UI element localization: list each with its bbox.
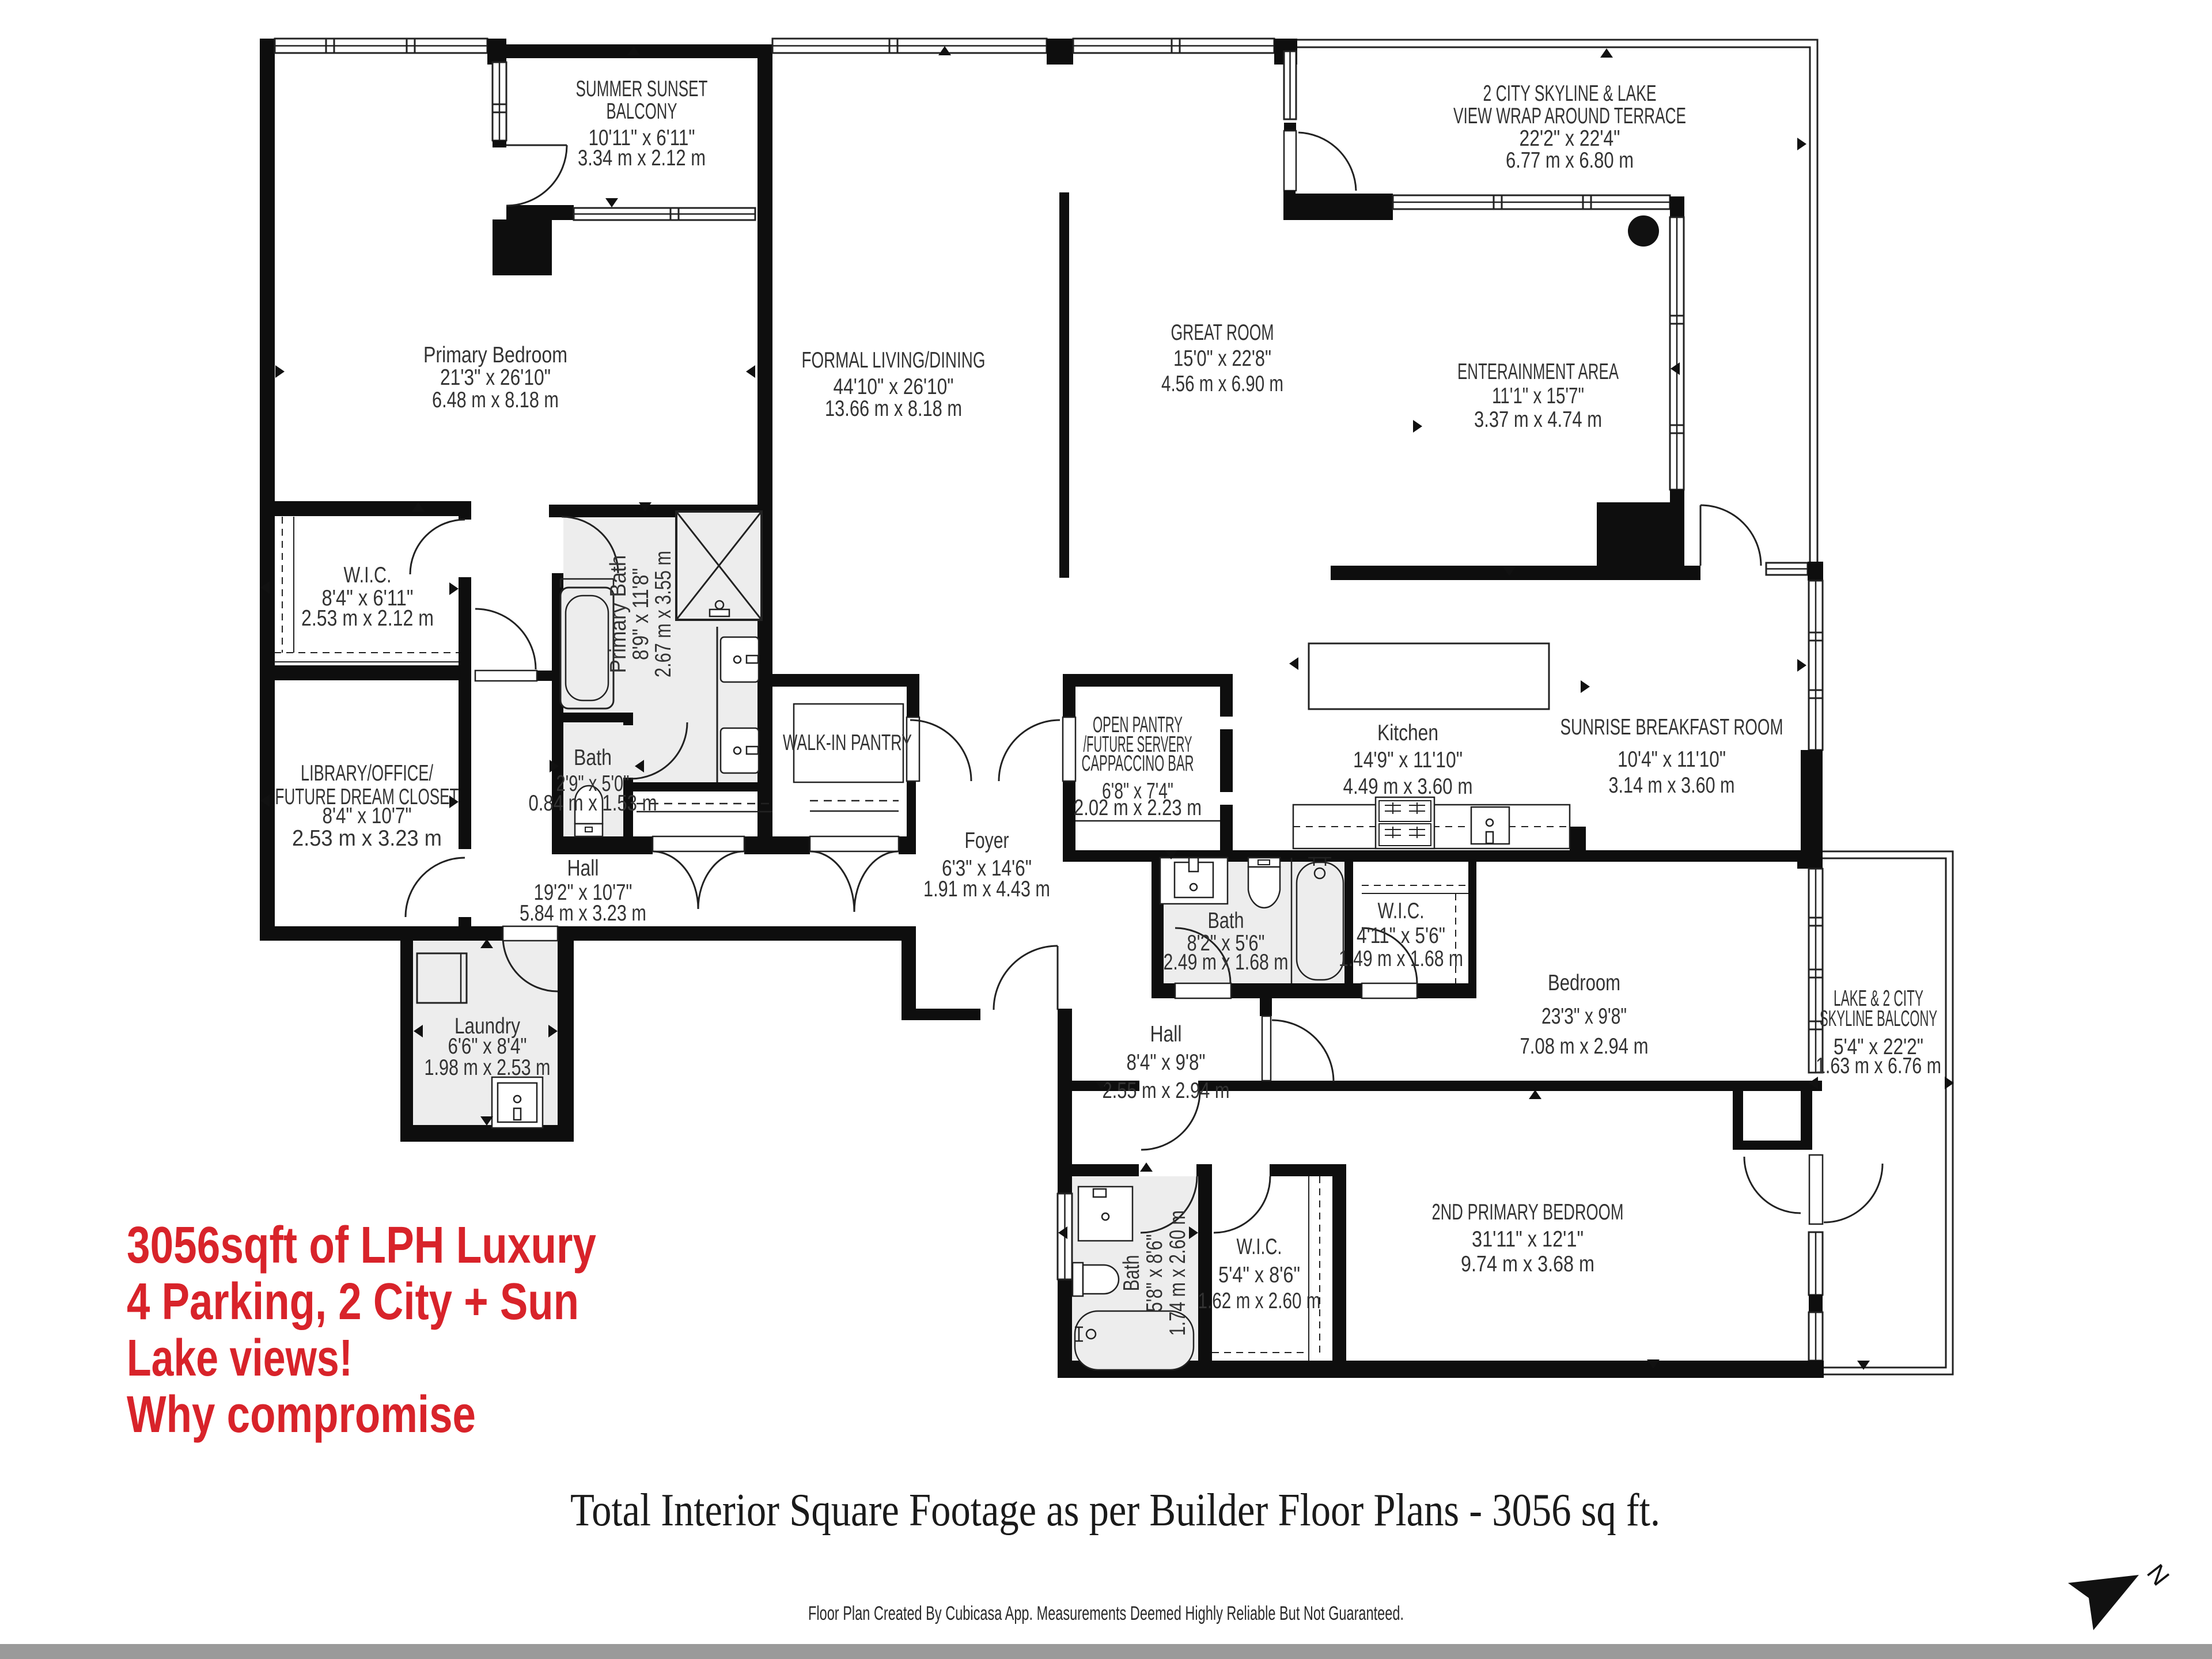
svg-text:Floor Plan Created By Cubicasa: Floor Plan Created By Cubicasa App. Meas…	[808, 1603, 1404, 1624]
svg-text:1.91 m x 4.43 m: 1.91 m x 4.43 m	[923, 877, 1050, 902]
svg-text:22'2" x 22'4": 22'2" x 22'4"	[1520, 126, 1620, 151]
svg-text:5'8" x 8'6": 5'8" x 8'6"	[1142, 1234, 1167, 1312]
svg-text:3056sqft of LPH Luxury: 3056sqft of LPH Luxury	[127, 1217, 596, 1274]
svg-text:3.34 m x 2.12 m: 3.34 m x 2.12 m	[578, 146, 706, 171]
svg-text:3.14 m x 3.60 m: 3.14 m x 3.60 m	[1609, 773, 1735, 798]
svg-text:4.49 m x 3.60 m: 4.49 m x 3.60 m	[1343, 774, 1473, 799]
svg-text:3.37 m x 4.74 m: 3.37 m x 4.74 m	[1474, 407, 1602, 432]
svg-text:1.49 m x 1.68 m: 1.49 m x 1.68 m	[1339, 946, 1463, 971]
svg-text:2.53 m x 3.23 m: 2.53 m x 3.23 m	[292, 826, 442, 851]
svg-text:2ND PRIMARY BEDROOM: 2ND PRIMARY BEDROOM	[1432, 1200, 1624, 1225]
svg-text:2.67 m x 3.55 m: 2.67 m x 3.55 m	[651, 551, 676, 677]
svg-text:W.I.C.: W.I.C.	[344, 563, 392, 588]
svg-text:2.55 m x 2.94 m: 2.55 m x 2.94 m	[1103, 1078, 1230, 1103]
svg-text:Bath: Bath	[1119, 1255, 1144, 1291]
svg-text:6.48 m x 8.18 m: 6.48 m x 8.18 m	[432, 388, 559, 412]
svg-text:1.74 m x 2.60 m: 1.74 m x 2.60 m	[1165, 1210, 1190, 1336]
svg-text:Primary Bath: Primary Bath	[606, 555, 631, 673]
svg-text:Total Interior Square Footage: Total Interior Square Footage as per Bui…	[570, 1485, 1660, 1536]
svg-text:1.62 m x 2.60 m: 1.62 m x 2.60 m	[1198, 1289, 1321, 1313]
svg-text:Bath: Bath	[574, 745, 612, 770]
svg-text:Foyer: Foyer	[965, 828, 1009, 853]
svg-text:Kitchen: Kitchen	[1377, 721, 1438, 745]
svg-text:2.53 m x 2.12 m: 2.53 m x 2.12 m	[301, 606, 434, 631]
svg-text:8'4" x 9'8": 8'4" x 9'8"	[1127, 1050, 1206, 1075]
svg-text:21'3" x 26'10": 21'3" x 26'10"	[440, 365, 551, 390]
svg-text:2.02 m x 2.23 m: 2.02 m x 2.23 m	[1074, 796, 1202, 820]
svg-text:1.63 m x 6.76 m: 1.63 m x 6.76 m	[1816, 1054, 1941, 1078]
svg-text:BALCONY: BALCONY	[607, 99, 677, 124]
svg-text:31'11" x 12'1": 31'11" x 12'1"	[1472, 1227, 1584, 1252]
svg-text:SKYLINE BALCONY: SKYLINE BALCONY	[1820, 1006, 1937, 1031]
svg-text:6.77 m x 6.80 m: 6.77 m x 6.80 m	[1506, 148, 1634, 173]
svg-text:GREAT ROOM: GREAT ROOM	[1171, 320, 1274, 345]
svg-text:7.08 m x 2.94 m: 7.08 m x 2.94 m	[1520, 1034, 1649, 1059]
svg-text:44'10" x 26'10": 44'10" x 26'10"	[834, 374, 954, 399]
svg-text:Primary Bedroom: Primary Bedroom	[423, 343, 567, 368]
svg-text:8'9" x 11'8": 8'9" x 11'8"	[628, 568, 653, 660]
svg-text:WALK-IN PANTRY: WALK-IN PANTRY	[783, 730, 912, 755]
svg-text:FORMAL LIVING/DINING: FORMAL LIVING/DINING	[802, 348, 986, 373]
svg-text:0.84 m x 1.53 m: 0.84 m x 1.53 m	[529, 791, 657, 816]
svg-text:Why compromise: Why compromise	[127, 1386, 476, 1444]
svg-text:8'4" x 10'7": 8'4" x 10'7"	[323, 804, 412, 828]
svg-text:LIBRARY/OFFICE/: LIBRARY/OFFICE/	[301, 761, 433, 786]
svg-text:13.66 m x 8.18 m: 13.66 m x 8.18 m	[825, 396, 962, 421]
svg-text:Hall: Hall	[567, 856, 599, 881]
svg-text:4'11" x 5'6": 4'11" x 5'6"	[1357, 923, 1445, 948]
svg-text:2 CITY SKYLINE & LAKE: 2 CITY SKYLINE & LAKE	[1483, 81, 1657, 106]
svg-text:10'4" x 11'10": 10'4" x 11'10"	[1618, 747, 1726, 772]
svg-text:CAPPACCINO BAR: CAPPACCINO BAR	[1082, 751, 1194, 776]
svg-text:4.56 m x 6.90 m: 4.56 m x 6.90 m	[1161, 372, 1283, 396]
svg-text:9.74 m x 3.68 m: 9.74 m x 3.68 m	[1461, 1252, 1594, 1277]
svg-text:5'4" x 8'6": 5'4" x 8'6"	[1218, 1263, 1300, 1287]
svg-text:SUNRISE BREAKFAST ROOM: SUNRISE BREAKFAST ROOM	[1560, 715, 1783, 740]
svg-text:11'1" x 15'7": 11'1" x 15'7"	[1492, 384, 1584, 408]
svg-text:Bath: Bath	[1208, 908, 1244, 933]
svg-text:W.I.C.: W.I.C.	[1237, 1234, 1282, 1259]
svg-text:15'0" x 22'8": 15'0" x 22'8"	[1173, 346, 1271, 371]
svg-text:Lake views!: Lake views!	[127, 1330, 353, 1387]
svg-text:VIEW WRAP AROUND TERRACE: VIEW WRAP AROUND TERRACE	[1453, 104, 1686, 128]
svg-text:5.84 m x 3.23 m: 5.84 m x 3.23 m	[520, 901, 646, 926]
svg-text:ENTERAINMENT AREA: ENTERAINMENT AREA	[1457, 359, 1619, 384]
svg-text:2.49 m x 1.68 m: 2.49 m x 1.68 m	[1164, 950, 1289, 975]
svg-text:W.I.C.: W.I.C.	[1378, 899, 1425, 923]
svg-text:23'3" x 9'8": 23'3" x 9'8"	[1541, 1004, 1627, 1029]
svg-text:Hall: Hall	[1150, 1022, 1182, 1047]
svg-text:1.98 m x 2.53 m: 1.98 m x 2.53 m	[425, 1055, 551, 1080]
svg-text:Bedroom: Bedroom	[1548, 971, 1620, 995]
svg-text:4 Parking, 2 City + Sun: 4 Parking, 2 City + Sun	[127, 1273, 579, 1331]
svg-text:SUMMER SUNSET: SUMMER SUNSET	[576, 77, 708, 101]
svg-text:14'9" x 11'10": 14'9" x 11'10"	[1353, 748, 1463, 772]
